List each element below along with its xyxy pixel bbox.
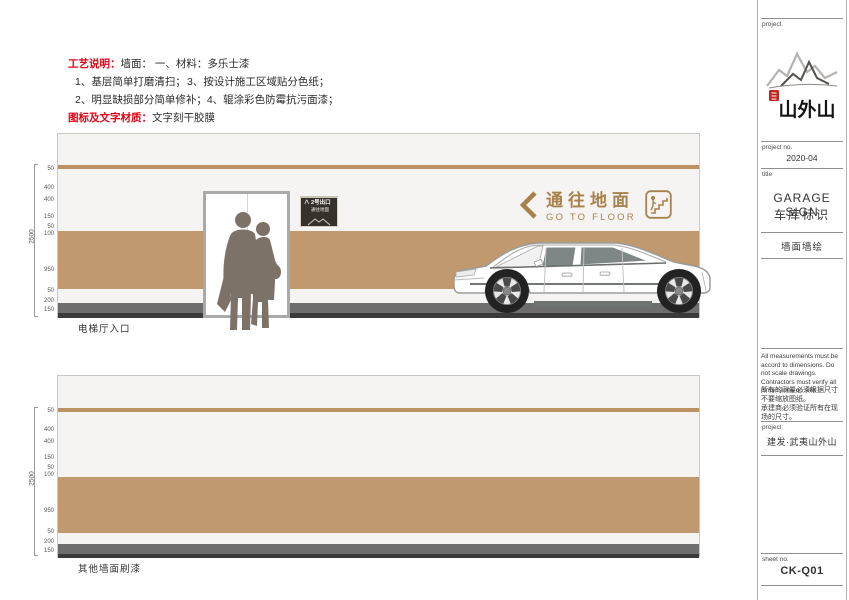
dimension-label: 50	[40, 166, 54, 172]
exit-sign: ∧ 2号出口 通往地面	[300, 196, 338, 227]
pedestrians-silhouette-icon	[204, 208, 296, 333]
dimension-label: 200	[40, 539, 54, 545]
go-to-floor-sign: 通往地面 GO TO FLOOR	[519, 186, 672, 223]
exit-sign-line2: 通往地面	[304, 207, 335, 213]
paint-stripe	[58, 165, 699, 169]
sheet-no-label: sheet no.	[762, 556, 789, 563]
rear-wheel	[657, 269, 701, 313]
spec-line-2: 1、基层简单打磨清扫；3、按设计施工区域贴分色纸；	[68, 73, 339, 91]
dimension-label: 950	[40, 508, 54, 514]
spec-item-2: 2、明显缺损部分简单修补；	[75, 91, 207, 109]
project-no-value: 2020-04	[757, 153, 847, 163]
dimension-total: 2500	[29, 464, 36, 494]
sheet-title-cn: 车库标识	[757, 206, 847, 223]
stairs-icon	[645, 190, 672, 219]
dimension-label: 50	[40, 288, 54, 294]
sign-text-cn: 通往地面	[546, 186, 636, 211]
dimension-label: 50	[40, 465, 54, 471]
spec-item-4: 4、辊涂彩色防霉抗污面漆；	[207, 94, 339, 106]
car-illustration	[450, 228, 714, 316]
dimension-label: 50	[40, 529, 54, 535]
project-name-label: project	[762, 424, 782, 431]
paint-stripe	[58, 408, 699, 412]
notes-chinese: 所有的测量必须根据尺寸 不要缩放图纸。 承建商必须验证所有在现 场的尺寸。	[761, 386, 843, 422]
spec-intro: 墙面： 一、材料：多乐士漆	[121, 58, 250, 70]
wall-skirting	[58, 554, 699, 558]
project-no-label: project no.	[762, 144, 792, 151]
drawing-sheet: 工艺说明：墙面： 一、材料：多乐士漆 1、基层简单打磨清扫；3、按设计施工区域贴…	[0, 0, 849, 600]
spec-item-1: 1、基层简单打磨清扫；	[75, 73, 187, 91]
dimension-label: 150	[40, 548, 54, 554]
sheet-no-value: CK-Q01	[757, 565, 847, 577]
wall-surface	[57, 375, 700, 557]
sign-text: 通往地面 GO TO FLOOR	[546, 186, 636, 223]
chevron-left-icon	[519, 191, 537, 219]
spec-item-3: 3、按设计施工区域贴分色纸；	[187, 76, 329, 88]
dimension-label: 150	[40, 455, 54, 461]
dimension-label: 950	[40, 267, 54, 273]
dimension-label: 400	[40, 197, 54, 203]
sign-text-en: GO TO FLOOR	[546, 212, 636, 223]
drawing-caption-2: 其他墙面刷漆	[78, 561, 141, 575]
front-wheel	[485, 269, 529, 313]
dimension-label: 400	[40, 427, 54, 433]
dimension-label: 50	[40, 224, 54, 230]
dimension-label: 150	[40, 214, 54, 220]
dimension-label: 400	[40, 185, 54, 191]
dimension-label: 400	[40, 439, 54, 445]
exit-sign-line1: ∧ 2号出口	[304, 200, 335, 207]
dimension-label: 100	[40, 472, 54, 478]
spec-label: 工艺说明：	[68, 58, 121, 70]
title-label: title	[762, 171, 772, 178]
dimension-label: 150	[40, 307, 54, 313]
wall-base	[58, 544, 699, 554]
spec-material-value: 文字刻干胶膜	[152, 112, 215, 124]
project-name: 建发·武夷山外山	[757, 435, 847, 448]
dimension-label: 100	[40, 231, 54, 237]
paint-band	[58, 477, 699, 533]
mountain-logo: 山外山	[763, 40, 843, 125]
elevation-other-walls: 2500 50 400 400 150 50 100 950 50 200 15…	[57, 375, 700, 557]
sidebar-right-border	[846, 0, 847, 600]
dimension-label: 50	[40, 408, 54, 414]
dimension-total: 2500	[29, 222, 36, 252]
sidebar-left-border	[757, 0, 758, 600]
spec-line-3: 2、明显缺损部分简单修补；4、辊涂彩色防霉抗污面漆；	[68, 91, 339, 109]
spec-material-label: 图标及文字材质：	[68, 112, 152, 124]
spec-notes: 工艺说明：墙面： 一、材料：多乐士漆 1、基层简单打磨清扫；3、按设计施工区域贴…	[68, 55, 339, 127]
elevator-door	[203, 191, 290, 318]
drawing-caption-1: 电梯厅入口	[78, 321, 131, 335]
spec-line-4: 图标及文字材质：文字刻干胶膜	[68, 109, 339, 127]
up-arrow-icon: ∧	[304, 200, 311, 206]
dimension-label: 200	[40, 298, 54, 304]
spec-line-1: 工艺说明：墙面： 一、材料：多乐士漆	[68, 55, 339, 73]
mountain-mini-icon	[304, 217, 336, 226]
project-label: project	[762, 21, 782, 28]
logo-calligraphy: 山外山	[778, 98, 835, 121]
sheet-subtitle: 墙面墙绘	[757, 239, 847, 253]
